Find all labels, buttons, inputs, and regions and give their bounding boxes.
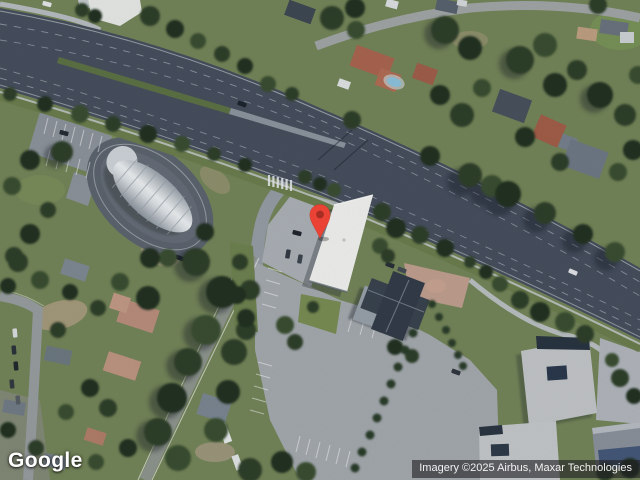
- attribution-text: Imagery ©2025 Airbus, Maxar Technologies: [419, 462, 632, 474]
- imagery-attribution: Imagery ©2025 Airbus, Maxar Technologies: [412, 460, 640, 478]
- google-logo[interactable]: Google: [8, 449, 83, 473]
- satellite-imagery: [0, 0, 640, 480]
- map-canvas[interactable]: Google Imagery ©2025 Airbus, Maxar Techn…: [0, 0, 640, 480]
